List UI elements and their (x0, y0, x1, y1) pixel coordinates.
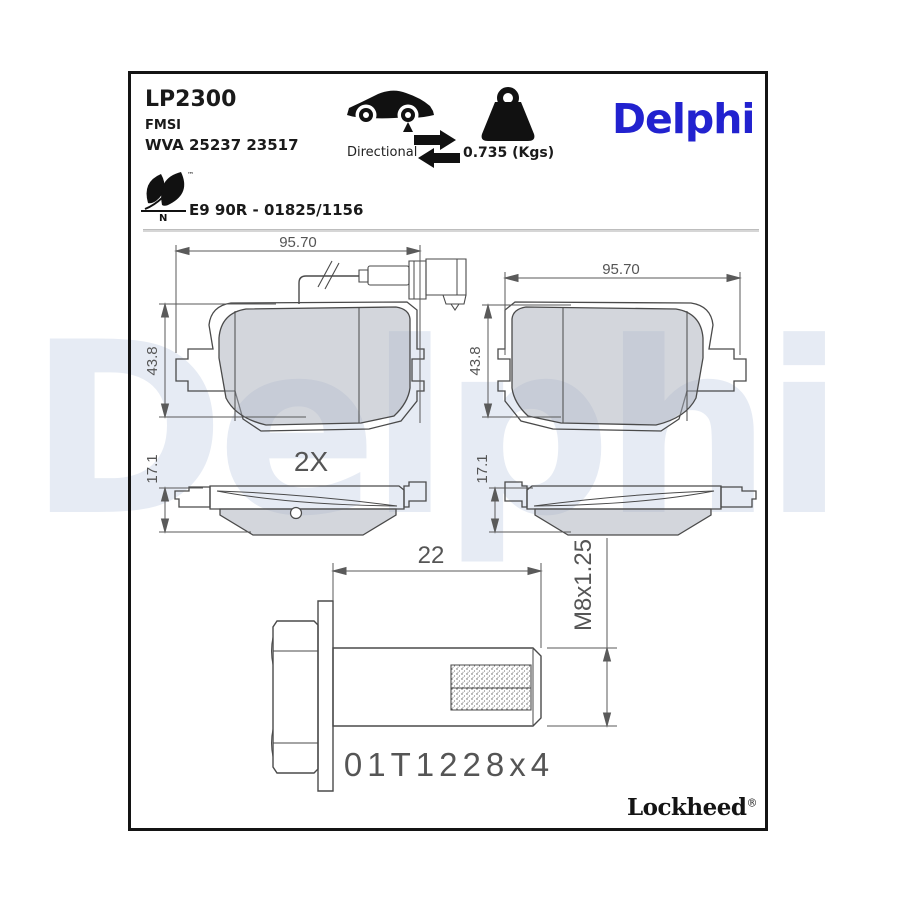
directional-label: Directional (347, 145, 417, 160)
svg-text:43.8: 43.8 (144, 346, 161, 375)
pad-front-view-right (498, 302, 746, 431)
weight-value: 0.735 (Kgs) (463, 145, 554, 161)
pad-profile-view-right (505, 482, 756, 535)
quantity-label: 2X (294, 446, 329, 477)
part-number: LP2300 (145, 87, 236, 112)
lockheed-logo: Lockheed® (627, 794, 757, 821)
dim-bolt-thread: M8x1.25 (547, 538, 617, 726)
eco-leaf-icon: N ™ (139, 168, 195, 222)
svg-text:43.8: 43.8 (467, 346, 484, 375)
approval-number: E9 90R - 01825/1156 (189, 201, 363, 219)
bolt-part-ref: 01T1228x4 (344, 746, 554, 783)
dim-bolt-length: 22 (333, 542, 541, 648)
datasheet-page: { "header": { "part_number": "LP2300", "… (0, 0, 900, 900)
svg-text:17.1: 17.1 (144, 454, 161, 483)
drawing-frame: LP2300 FMSI WVA 25237 23517 Directional … (128, 71, 768, 831)
weight-icon (474, 87, 542, 145)
wva-numbers: WVA 25237 23517 (145, 136, 299, 154)
fmsi-label: FMSI (145, 118, 181, 133)
svg-text:95.70: 95.70 (602, 261, 640, 278)
profile-rivet-hole (291, 508, 302, 519)
car-icon (344, 84, 439, 132)
svg-text:95.70: 95.70 (279, 234, 317, 251)
directional-arrows-icon (414, 130, 460, 168)
lockheed-wordmark: Lockheed (627, 794, 747, 821)
technical-drawing: 95.70 43.8 95.70 43.8 2X (131, 233, 765, 793)
svg-text:17.1: 17.1 (474, 454, 491, 483)
trademark-symbol: ™ (187, 171, 194, 179)
registered-mark: ® (747, 796, 758, 809)
delphi-logo: Delphi (612, 95, 755, 143)
eco-letter: N (159, 213, 167, 222)
svg-text:22: 22 (418, 542, 445, 569)
header-divider (143, 229, 759, 232)
svg-text:M8x1.25: M8x1.25 (570, 539, 597, 631)
